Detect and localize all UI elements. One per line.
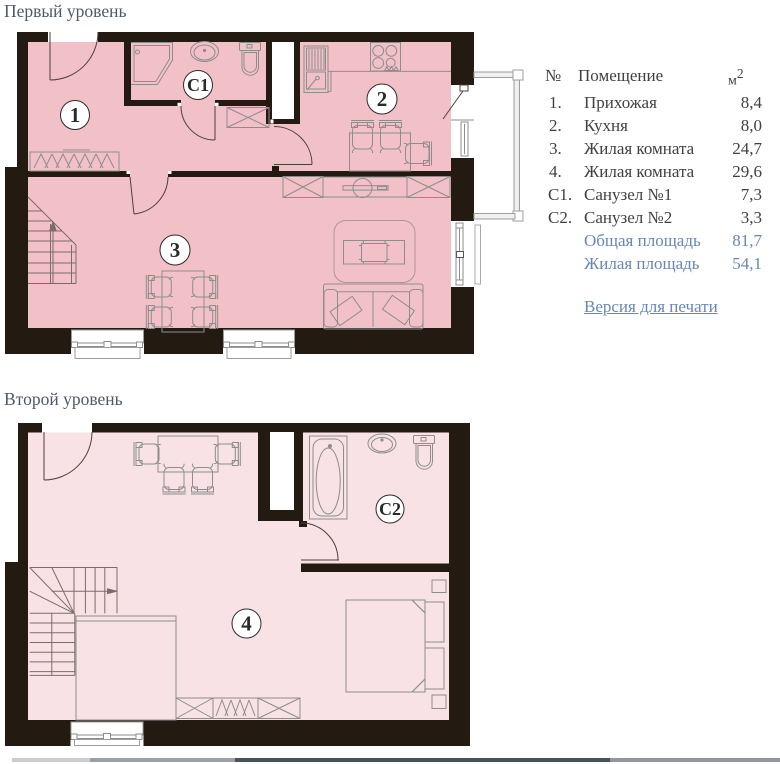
svg-text:4: 4	[241, 612, 252, 636]
svg-text:2: 2	[377, 87, 388, 111]
svg-text:3: 3	[170, 238, 181, 262]
svg-text:C1: C1	[187, 75, 209, 95]
svg-text:1: 1	[70, 103, 81, 127]
svg-text:C2: C2	[379, 499, 401, 519]
